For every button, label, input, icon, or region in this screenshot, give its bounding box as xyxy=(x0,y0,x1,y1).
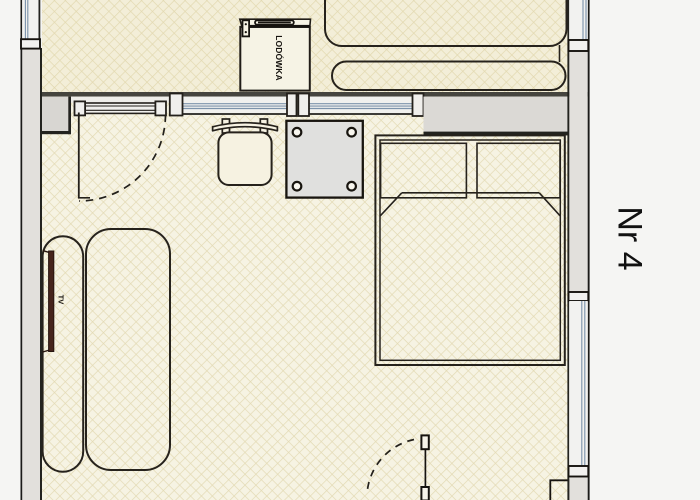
svg-text:LODÓWKA: LODÓWKA xyxy=(274,35,285,81)
svg-text:TV: TV xyxy=(57,295,66,306)
svg-text:Nr 4: Nr 4 xyxy=(611,206,649,270)
